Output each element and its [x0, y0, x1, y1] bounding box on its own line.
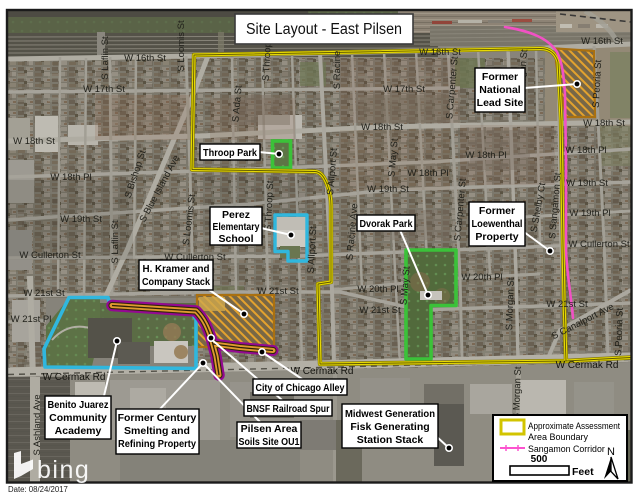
svg-text:Sangamon Corridor: Sangamon Corridor: [528, 444, 605, 454]
svg-text:W 21st St: W 21st St: [359, 305, 401, 316]
svg-text:S Laflin St: S Laflin St: [110, 220, 121, 264]
svg-text:Elementary: Elementary: [213, 221, 260, 233]
svg-text:Community: Community: [49, 412, 107, 424]
svg-text:W 21st St: W 21st St: [546, 299, 588, 310]
svg-text:W 16th St: W 16th St: [419, 47, 461, 58]
svg-text:W 20th Pl: W 20th Pl: [461, 272, 502, 283]
svg-text:Area Boundary: Area Boundary: [528, 432, 589, 442]
svg-text:W Cullerton St: W Cullerton St: [568, 239, 630, 250]
svg-text:Refining Property: Refining Property: [118, 438, 196, 450]
svg-text:W 18th Pl: W 18th Pl: [565, 145, 606, 156]
svg-text:W 16th St: W 16th St: [124, 53, 166, 64]
svg-text:W 19th St: W 19th St: [367, 184, 409, 195]
svg-text:S Ashland Ave: S Ashland Ave: [32, 394, 43, 455]
svg-text:Former: Former: [479, 205, 515, 217]
svg-text:W 17th St: W 17th St: [83, 84, 125, 95]
svg-text:W Cermak Rd: W Cermak Rd: [291, 366, 354, 377]
svg-text:W 18th St: W 18th St: [361, 122, 403, 133]
svg-text:W 21st Pl: W 21st Pl: [11, 314, 52, 325]
svg-text:W 18th St: W 18th St: [13, 136, 55, 147]
svg-text:BNSF Railroad Spur: BNSF Railroad Spur: [247, 403, 330, 415]
svg-text:W 18th St: W 18th St: [583, 118, 625, 129]
svg-text:W Cermak Rd: W Cermak Rd: [43, 372, 106, 383]
svg-text:W 18th Pl: W 18th Pl: [407, 168, 448, 179]
svg-text:W 18th Pl: W 18th Pl: [50, 172, 91, 183]
svg-text:Throop Park: Throop Park: [203, 147, 257, 159]
svg-text:S Laflin St: S Laflin St: [100, 36, 111, 80]
svg-text:bing: bing: [37, 456, 90, 484]
svg-text:W Cermak Rd: W Cermak Rd: [556, 360, 619, 371]
svg-text:H. Kramer and: H. Kramer and: [143, 263, 210, 275]
svg-text:N: N: [607, 446, 615, 458]
svg-text:Loewenthal: Loewenthal: [472, 218, 523, 230]
svg-text:S Morgan St: S Morgan St: [511, 366, 524, 420]
svg-text:S Peoria St: S Peoria St: [613, 307, 626, 356]
svg-text:W 21st St: W 21st St: [23, 288, 65, 299]
svg-text:Perez: Perez: [222, 209, 250, 221]
svg-text:Soils Site OU1: Soils Site OU1: [239, 436, 300, 448]
svg-text:500: 500: [531, 454, 548, 465]
svg-text:S Morgan St: S Morgan St: [504, 277, 517, 331]
svg-text:Lead Site: Lead Site: [477, 97, 524, 109]
svg-text:Benito Juarez: Benito Juarez: [48, 399, 109, 411]
svg-text:W 17th St: W 17th St: [383, 84, 425, 95]
svg-text:W 16th St: W 16th St: [581, 36, 623, 47]
svg-text:National: National: [479, 84, 521, 96]
svg-text:S Racine: S Racine: [332, 51, 343, 90]
svg-text:Academy: Academy: [55, 425, 102, 437]
svg-text:W 18th Pl: W 18th Pl: [465, 150, 506, 161]
svg-text:Midwest Generation: Midwest Generation: [345, 408, 435, 420]
svg-text:W 19th St: W 19th St: [60, 214, 102, 225]
svg-text:Former Century: Former Century: [118, 412, 197, 424]
svg-text:Dvorak Park: Dvorak Park: [360, 218, 413, 230]
svg-text:Property: Property: [475, 231, 518, 243]
svg-text:Fisk Generating: Fisk Generating: [350, 421, 429, 433]
svg-text:W 19th St: W 19th St: [566, 178, 608, 189]
svg-text:Approximate Assessment: Approximate Assessment: [528, 421, 620, 431]
svg-text:Date: 08/24/2017: Date: 08/24/2017: [8, 485, 68, 494]
svg-text:W 21st St: W 21st St: [257, 286, 299, 297]
svg-text:School: School: [218, 233, 253, 245]
svg-text:W Cullerton St: W Cullerton St: [19, 250, 81, 261]
svg-text:Feet: Feet: [572, 466, 594, 478]
svg-text:Former: Former: [482, 71, 518, 83]
svg-text:W 19th Pl: W 19th Pl: [569, 208, 610, 219]
svg-text:W 20th Pl: W 20th Pl: [357, 284, 398, 295]
svg-text:Pilsen Area: Pilsen Area: [241, 423, 298, 435]
svg-text:Company Stack: Company Stack: [142, 276, 210, 288]
svg-text:Site Layout - East Pilsen: Site Layout - East Pilsen: [246, 21, 402, 38]
svg-text:Station Stack: Station Stack: [357, 434, 424, 446]
svg-text:City of Chicago Alley: City of Chicago Alley: [256, 382, 345, 394]
svg-text:Smelting and: Smelting and: [124, 425, 190, 437]
svg-text:S Loomis St: S Loomis St: [176, 20, 187, 72]
